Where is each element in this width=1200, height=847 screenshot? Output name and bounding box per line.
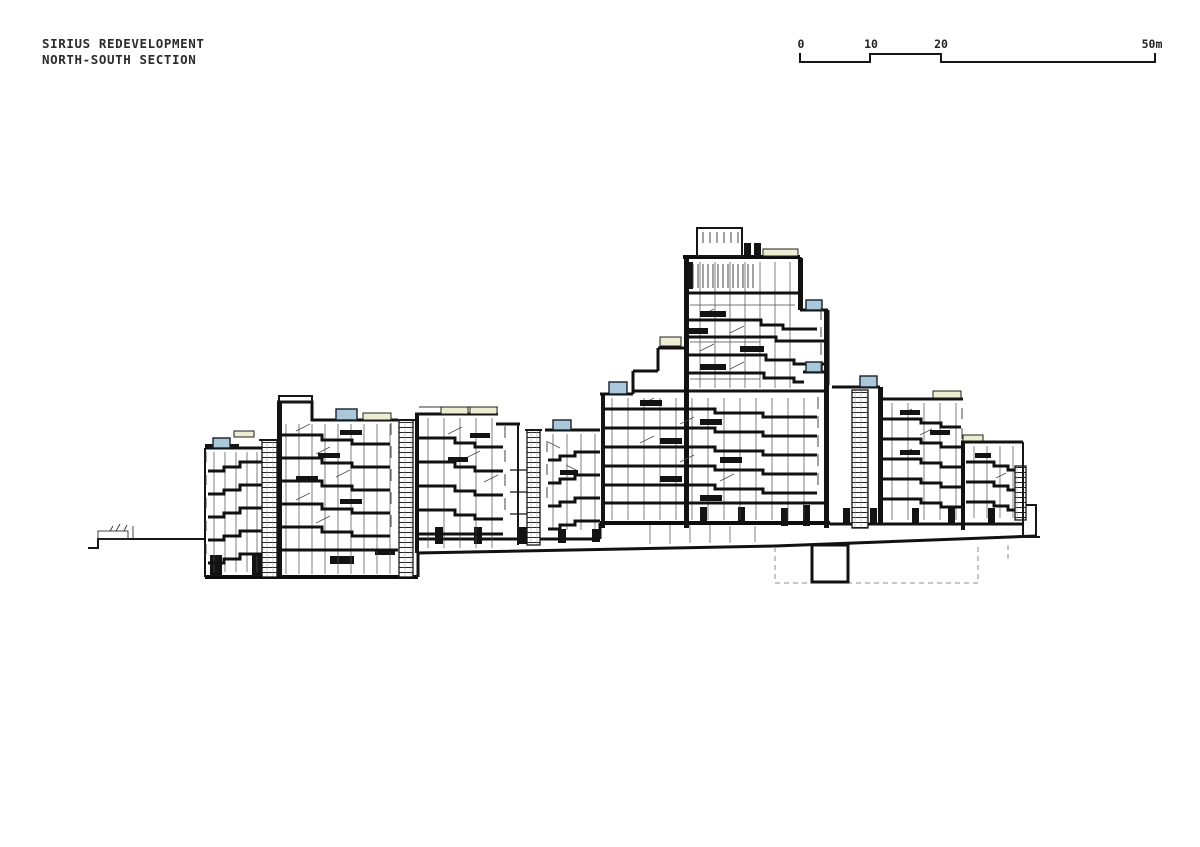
lift-pit — [812, 545, 848, 582]
scale-mark-10: 10 — [864, 37, 878, 51]
scale-bar-line — [800, 53, 1155, 62]
link-block — [545, 420, 600, 530]
right-step-terraces — [832, 376, 880, 528]
drawing-sheet: SIRIUS REDEVELOPMENT NORTH-SOUTH SECTION… — [0, 0, 1200, 847]
skylight — [806, 362, 822, 372]
stair-core — [527, 430, 540, 545]
roof-planter — [933, 391, 961, 398]
skylight — [609, 382, 627, 394]
drawing-title-line1: SIRIUS REDEVELOPMENT — [42, 36, 205, 51]
roof-planter — [441, 407, 468, 414]
roof-planter — [963, 435, 983, 441]
left-tall-block — [277, 396, 398, 577]
roof-plant-room — [697, 228, 742, 256]
roof-chimney — [754, 243, 761, 256]
roof-planter — [234, 431, 254, 437]
roof-chimney — [744, 243, 751, 256]
scale-mark-0: 0 — [798, 37, 805, 51]
skylight — [860, 376, 877, 387]
skylight — [213, 438, 230, 448]
roof-planter — [363, 413, 391, 420]
roof-planter — [660, 337, 681, 346]
ground-profile — [88, 505, 1040, 577]
skylight — [336, 409, 357, 420]
right-mid-block — [878, 387, 963, 524]
section-drawing-canvas: SIRIUS REDEVELOPMENT NORTH-SOUTH SECTION… — [0, 0, 1200, 847]
scale-mark-20: 20 — [934, 37, 948, 51]
roof-pergola — [693, 264, 753, 288]
title-block: SIRIUS REDEVELOPMENT NORTH-SOUTH SECTION — [42, 36, 205, 67]
roof-planter — [763, 249, 798, 256]
stair-core — [399, 420, 413, 577]
stair-core — [262, 440, 277, 577]
drawing-title-line2: NORTH-SOUTH SECTION — [42, 52, 196, 67]
skylight — [553, 420, 571, 430]
scale-mark-50: 50m — [1142, 37, 1163, 51]
stair-core — [1015, 466, 1026, 520]
scale-bar: 0 10 20 50m — [798, 37, 1163, 62]
skylight — [806, 300, 822, 310]
mid-block — [415, 407, 527, 553]
stair-core — [852, 390, 868, 528]
basement-dashed-boundary — [775, 547, 978, 583]
basement-outline — [775, 545, 1008, 583]
tower-block — [600, 228, 829, 528]
roof-planter — [470, 407, 497, 414]
